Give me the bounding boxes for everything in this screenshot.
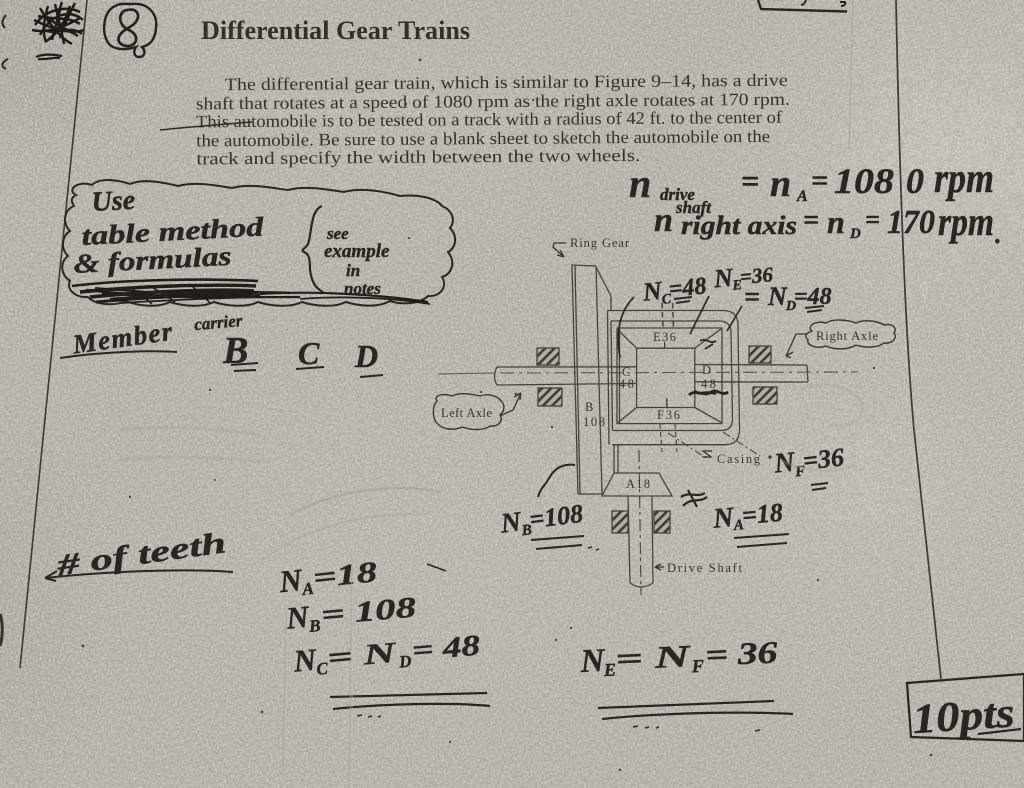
svg-text:C: C: [298, 335, 320, 371]
svg-text:right axis: right axis: [681, 211, 797, 240]
svg-text:track and specify the width be: track and specify the width between the …: [196, 145, 640, 168]
svg-text:n: n: [629, 161, 651, 206]
svg-text:D: D: [354, 338, 378, 374]
svg-text:rpm: rpm: [938, 199, 994, 244]
svg-text:108: 108: [583, 415, 605, 429]
svg-text:= N: = N: [615, 638, 693, 676]
svg-text:D: D: [702, 363, 711, 377]
svg-text:=: =: [811, 164, 828, 197]
svg-text:Differential Gear Trains: Differential Gear Trains: [201, 16, 470, 45]
svg-text:D: D: [397, 651, 412, 671]
svg-text:=: =: [744, 282, 760, 313]
svg-text:Use: Use: [91, 185, 136, 218]
svg-text:Right Axle: Right Axle: [816, 329, 878, 343]
svg-text:.: .: [995, 220, 1002, 249]
svg-text:A18: A18: [626, 477, 650, 491]
svg-text:=: =: [865, 205, 880, 234]
svg-text:N: N: [579, 643, 607, 680]
svg-text:170: 170: [887, 204, 935, 241]
svg-text:10pts: 10pts: [911, 690, 1016, 743]
svg-text:=18: =18: [741, 498, 784, 530]
svg-text:=18: =18: [312, 556, 380, 595]
svg-text:F36: F36: [657, 408, 680, 422]
svg-text:n: n: [770, 163, 791, 205]
svg-text:F: F: [690, 656, 704, 677]
svg-text:=48: =48: [794, 284, 832, 310]
svg-text:example: example: [324, 241, 390, 262]
svg-text:A: A: [300, 579, 314, 599]
svg-text:Left Axle: Left Axle: [441, 406, 492, 420]
svg-text:D: D: [849, 226, 861, 242]
svg-text:E: E: [603, 660, 617, 681]
svg-text:n: n: [827, 204, 845, 240]
svg-text:= 36: = 36: [705, 634, 779, 672]
svg-text:B: B: [307, 616, 321, 636]
svg-text:Casing: Casing: [717, 452, 761, 466]
svg-text:=48: =48: [667, 273, 707, 303]
svg-text:0: 0: [906, 161, 924, 201]
svg-text:= N: = N: [326, 637, 398, 675]
svg-text:B: B: [585, 400, 593, 414]
svg-text:notes: notes: [344, 279, 381, 298]
svg-text:=: =: [741, 163, 759, 199]
svg-text:n: n: [654, 202, 673, 239]
svg-text:Ring Gear: Ring Gear: [570, 236, 630, 250]
svg-text:= 48: = 48: [411, 629, 482, 667]
svg-text:=: =: [803, 205, 819, 236]
svg-text:E36: E36: [653, 330, 676, 344]
svg-text:A: A: [796, 188, 808, 205]
svg-text:B: B: [222, 330, 248, 372]
svg-text:in: in: [346, 261, 360, 280]
svg-text:rpm: rpm: [934, 156, 994, 202]
svg-text:108: 108: [834, 161, 894, 201]
svg-text:N: N: [767, 282, 788, 311]
